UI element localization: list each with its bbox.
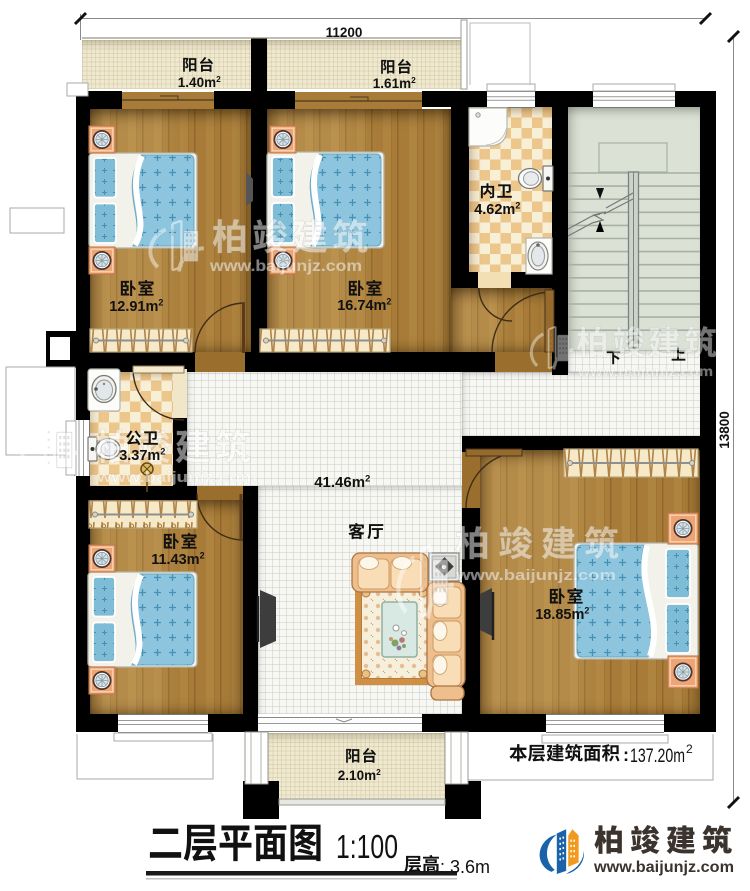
svg-text:www.baijunjz.com: www.baijunjz.com [593,859,734,876]
svg-text:: 3.6m: : 3.6m [440,857,490,877]
svg-text:3.37m2: 3.37m2 [119,447,165,465]
svg-text:1:100: 1:100 [336,828,398,865]
svg-text:1.40m2: 1.40m2 [178,74,221,90]
svg-text:12.91m2: 12.91m2 [109,298,163,316]
svg-text:13800: 13800 [717,411,732,449]
svg-text:www.baijunjz.com: www.baijunjz.com [577,363,713,379]
svg-text:11.43m2: 11.43m2 [151,551,204,569]
svg-text:1.61m2: 1.61m2 [373,75,416,91]
svg-text:18.85m2: 18.85m2 [535,606,589,624]
svg-text::: : [623,745,629,765]
svg-text:www.baijunjz.com: www.baijunjz.com [455,567,616,584]
svg-text:www.baijunjz.com: www.baijunjz.com [209,258,362,275]
svg-text:16.74m2: 16.74m2 [337,297,391,315]
svg-text:2: 2 [686,742,693,756]
svg-text:41.46m2: 41.46m2 [314,473,370,491]
svg-text:137.20m: 137.20m [630,745,685,767]
svg-text:4.62m2: 4.62m2 [474,201,520,219]
svg-text:2.10m2: 2.10m2 [338,767,381,783]
svg-text:www.baijunjz.com: www.baijunjz.com [96,469,257,486]
